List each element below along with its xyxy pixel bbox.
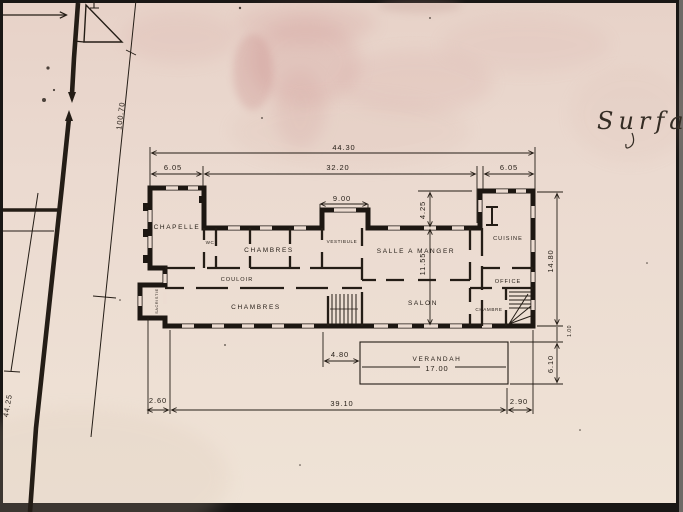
dim-left-wing: 6.05 [164, 163, 182, 172]
dim-right-depth: 14.80 [546, 249, 555, 272]
room-label-chambres-bottom: CHAMBRES [231, 304, 281, 311]
room-label-salle-a-manger: SALLE A MANGER [377, 248, 455, 255]
dim-verandah-depth: 6.10 [546, 355, 555, 373]
room-label-chapelle: CHAPELLE [154, 224, 201, 231]
dim-bottom-width: 39.10 [330, 399, 353, 408]
room-label-salon: SALON [408, 300, 438, 307]
dim-right-wing: 6.05 [500, 163, 518, 172]
surface-annotation: Surface [597, 107, 683, 135]
room-label-verandah: VERANDAH [413, 356, 462, 363]
room-label-couloir: COULOIR [221, 277, 254, 283]
dim-upper-offset: 4.25 [418, 201, 427, 219]
room-label-vestibule: VESTIBULE [327, 239, 358, 244]
dim-main-depth: 11.55 [418, 253, 427, 276]
dim-right-offset: 1.00 [567, 325, 573, 337]
dim-bottom-left: 2.60 [149, 396, 167, 405]
floor-plan-drawing: 100.70 44.25 Surface [0, 0, 683, 512]
room-label-chambres-top: CHAMBRES [244, 247, 294, 254]
dim-verandah-width: 17.00 [425, 364, 448, 373]
scanned-floor-plan-page: 100.70 44.25 Surface [0, 0, 683, 512]
dim-bottom-right: 2.90 [510, 397, 528, 406]
room-label-chambre: CHAMBRE [475, 307, 502, 312]
room-label-office: OFFICE [495, 279, 522, 285]
room-label-cuisine: CUISINE [493, 236, 523, 242]
room-label-sacristie: SACRISTIE [155, 288, 159, 313]
dim-verandah-offset: 4.80 [331, 350, 349, 359]
scan-edge-strip [679, 0, 683, 512]
dim-porch-width: 9.00 [333, 194, 351, 203]
dim-main-width: 32.20 [326, 163, 349, 172]
room-label-wc: WC [206, 240, 215, 245]
dim-total-width: 44.30 [332, 143, 355, 152]
